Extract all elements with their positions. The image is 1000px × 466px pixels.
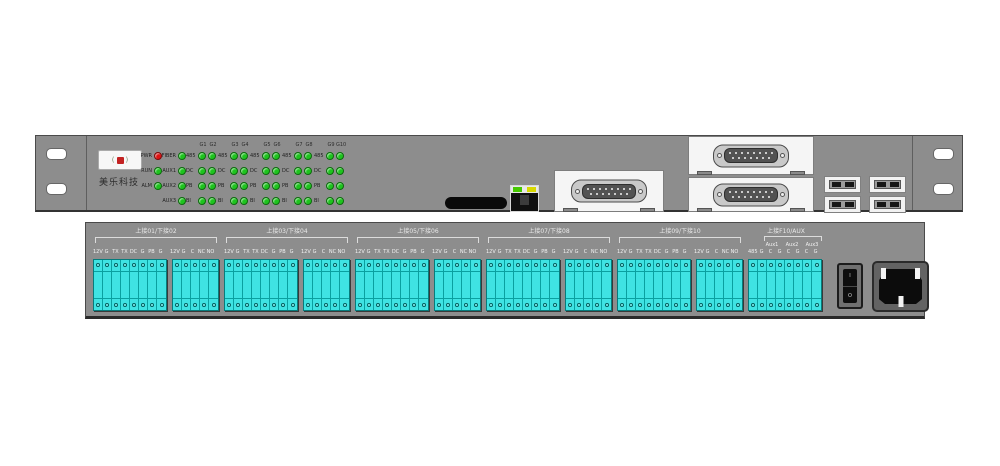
channel-led [230, 197, 238, 205]
terminal-label: TX [111, 249, 120, 256]
terminal [471, 260, 480, 310]
module-led-label: FIBER [160, 153, 176, 159]
db15-pin [735, 152, 737, 154]
db15-pin [738, 196, 740, 198]
db15-pin [617, 188, 619, 190]
terminal [505, 260, 514, 310]
db15-pin [765, 191, 767, 193]
rocker-divider [843, 286, 857, 287]
ethernet-activity-led [527, 187, 536, 192]
module-led-label: AUX2 [160, 183, 176, 189]
terminal [566, 260, 575, 310]
fiber-slot-icon [890, 182, 899, 187]
channel-led-pair: DC [218, 167, 250, 175]
back-panel: 上接01/下接0212VGTXTXDCGPBG12VGCNCNO上接03/下接0… [85, 222, 925, 319]
terminal [304, 260, 313, 310]
channel-led [208, 197, 216, 205]
channel-led [262, 197, 270, 205]
db15-pin [744, 157, 746, 159]
terminal-block [696, 259, 743, 311]
channel-led [326, 182, 334, 190]
terminal-block [303, 259, 350, 311]
terminal-block [93, 259, 167, 311]
terminal [103, 260, 112, 310]
terminal [322, 260, 331, 310]
power-switch: I O [837, 263, 863, 309]
channel-led [230, 182, 238, 190]
terminal [112, 260, 121, 310]
db15-module-1 [554, 170, 664, 212]
terminal-label: DC [653, 249, 662, 256]
grid-row-label: PB [282, 183, 294, 189]
channel-led-pair: BI [314, 197, 346, 205]
terminal-label: C [319, 249, 328, 256]
plate-tab [697, 208, 712, 212]
terminal-label: C [450, 249, 459, 256]
channel-led [240, 197, 248, 205]
channel-led-pair: PB [250, 182, 282, 190]
terminal-label: G [233, 249, 242, 256]
db15-pin [771, 191, 773, 193]
power-pin-icon [898, 296, 903, 307]
terminal [340, 260, 349, 310]
db15-pin [750, 196, 752, 198]
channel-led-pair: DC [186, 167, 218, 175]
channel-led [304, 197, 312, 205]
group-title: 上接05/下接06 [355, 227, 481, 236]
rack-mount-hole [933, 183, 954, 195]
aux-title: 上接F10/AUX [748, 227, 824, 236]
terminal [523, 260, 532, 310]
db15-pin [753, 152, 755, 154]
channel-terminal-group: 上接01/下接0212VGTXTXDCGPBG12VGCNCNO [93, 227, 219, 311]
channel-led-pair: DC [314, 167, 346, 175]
terminal-label: G [138, 249, 147, 256]
channel-led [326, 167, 334, 175]
channel-led-pair: 485 [282, 152, 314, 160]
terminal-label: G [310, 249, 319, 256]
terminal-label: DC [260, 249, 269, 256]
grid-row-label: BI [314, 198, 326, 204]
rack-mount-hole [46, 148, 67, 160]
module-led-row: AUX3 [160, 193, 186, 208]
db15-pin [750, 157, 752, 159]
terminal-label: 12V [432, 249, 441, 256]
terminal [767, 260, 776, 310]
screw-icon [638, 189, 643, 194]
channel-led [262, 167, 270, 175]
terminal [593, 260, 602, 310]
terminal-label: G [102, 249, 111, 256]
grid-row-label: DC [282, 168, 294, 174]
power-inlet [872, 261, 929, 312]
grid-row-label: DC [314, 168, 326, 174]
terminal [435, 260, 444, 310]
terminal-label: 12V [617, 249, 626, 256]
db15-pin [765, 152, 767, 154]
channel-header: G4 [240, 142, 250, 148]
terminal-label: TX [513, 249, 522, 256]
terminal [270, 260, 279, 310]
db15-connector [571, 180, 647, 203]
channel-led [198, 167, 206, 175]
channel-led-pair: BI [250, 197, 282, 205]
terminal [313, 260, 322, 310]
channel-led [198, 152, 206, 160]
channel-led [294, 152, 302, 160]
status-led-row: RUN [136, 163, 162, 178]
terminal [139, 260, 148, 310]
grid-row-label: BI [218, 198, 230, 204]
terminal-label: G [441, 249, 450, 256]
db15-pin [747, 152, 749, 154]
db15-pin [753, 191, 755, 193]
db15-pin-field [724, 148, 778, 163]
channel-header: G5 [262, 142, 272, 148]
terminal [532, 260, 541, 310]
terminal-label: C [766, 249, 775, 256]
terminal-label: TX [382, 249, 391, 256]
channel-led [304, 152, 312, 160]
terminal-label: PB [278, 249, 287, 256]
channel-led [240, 182, 248, 190]
group-bracket [357, 237, 479, 243]
terminal [724, 260, 733, 310]
terminal [234, 260, 243, 310]
group-title: 上接01/下接02 [93, 227, 219, 236]
db15-pin [735, 191, 737, 193]
db15-pin [593, 188, 595, 190]
group-bracket [226, 237, 348, 243]
terminal-label: G [757, 249, 766, 256]
grid-header-row: G1G2G3G4G5G6G7G8G9G10 [186, 138, 346, 148]
terminal [182, 260, 191, 310]
channel-led [336, 167, 344, 175]
terminal-label: DC [129, 249, 138, 256]
grid-row-label: 485 [282, 153, 294, 159]
terminal-label: G [418, 249, 427, 256]
aux-bracket [764, 236, 822, 241]
db15-module-3 [688, 177, 814, 212]
grid-row-label: PB [314, 183, 326, 189]
terminal [584, 260, 593, 310]
terminal-label: NO [337, 249, 346, 256]
terminal [173, 260, 182, 310]
grid-row-label: 485 [314, 153, 326, 159]
aux-terminal-group: 上接F10/AUXAux1Aux2Aux3485GCGCGCG [748, 227, 824, 311]
channel-led [240, 152, 248, 160]
ethernet-link-led [513, 187, 522, 192]
rack-mount-hole [46, 183, 67, 195]
terminal [383, 260, 392, 310]
terminal-label: 12V [93, 249, 102, 256]
terminal-label: 12V [563, 249, 572, 256]
db15-pin [602, 193, 604, 195]
aux3-led [178, 197, 186, 205]
terminal-blocks-row [93, 259, 219, 311]
terminal [225, 260, 234, 310]
terminal [356, 260, 365, 310]
grid-row-label: 485 [250, 153, 262, 159]
db15-pin [587, 188, 589, 190]
channel-led [198, 197, 206, 205]
channel-header: G9 [326, 142, 336, 148]
terminal-block [748, 259, 822, 311]
db15-pin [611, 188, 613, 190]
terminal-block [224, 259, 298, 311]
db15-pin-field [582, 184, 636, 199]
channel-led-grid: G1G2G3G4G5G6G7G8G9G10485485485485485DCDC… [186, 138, 346, 208]
channel-header: G3 [230, 142, 240, 148]
fiber-led [178, 152, 186, 160]
terminal-label: G [531, 249, 540, 256]
channel-header: G2 [208, 142, 218, 148]
module-led-column: FIBERAUX1AUX2AUX3 [160, 148, 186, 208]
terminal [191, 260, 200, 310]
back-groups-row: 上接01/下接0212VGTXTXDCGPBG12VGCNCNO上接03/下接0… [86, 223, 924, 316]
channel-led [262, 182, 270, 190]
terminal-label: DC [522, 249, 531, 256]
db15-pin [732, 157, 734, 159]
terminal-label: G [156, 249, 165, 256]
terminal [121, 260, 130, 310]
channel-header: G1 [198, 142, 208, 148]
aux-sub-label: Aux2 [782, 242, 802, 248]
terminal-blocks-row [617, 259, 743, 311]
terminal [200, 260, 209, 310]
channel-led [336, 152, 344, 160]
channel-led-pair: 485 [314, 152, 346, 160]
terminal-label: 12V [170, 249, 179, 256]
fiber-coupler [869, 196, 906, 213]
terminal-label: G [775, 249, 784, 256]
channel-led [294, 197, 302, 205]
terminal [715, 260, 724, 310]
grid-row-label: PB [250, 183, 262, 189]
terminal [453, 260, 462, 310]
terminal-label: TX [644, 249, 653, 256]
terminal-block [486, 259, 560, 311]
grid-row-label: BI [250, 198, 262, 204]
channel-led-pair: PB [186, 182, 218, 190]
terminal-label: NC [459, 249, 468, 256]
channel-led [336, 182, 344, 190]
db15-pin [759, 191, 761, 193]
aux1-led [178, 167, 186, 175]
terminal [392, 260, 401, 310]
screw-icon [780, 192, 785, 197]
db15-pin [732, 196, 734, 198]
db15-pin [738, 157, 740, 159]
terminal [803, 260, 812, 310]
terminal-label: TX [120, 249, 129, 256]
terminal [410, 260, 419, 310]
db15-pin [596, 193, 598, 195]
terminal [794, 260, 803, 310]
channel-header: G7 [294, 142, 304, 148]
fiber-slot-icon [845, 182, 854, 187]
terminal [627, 260, 636, 310]
module-led-row: AUX1 [160, 163, 186, 178]
db15-pin [729, 152, 731, 154]
status-led-column: PWRRUNALM [136, 148, 162, 193]
terminal [148, 260, 157, 310]
terminal-blocks-row [486, 259, 612, 311]
screw-icon [575, 189, 580, 194]
db15-pin [762, 157, 764, 159]
channel-terminal-group: 上接09/下接1012VGTXTXDCGPBG12VGCNCNO [617, 227, 743, 311]
grid-row: DCDCDCDCDC [186, 163, 346, 178]
channel-led-pair: BI [186, 197, 218, 205]
grid-row: PBPBPBPBPB [186, 178, 346, 193]
terminal [130, 260, 139, 310]
terminal-label: G [549, 249, 558, 256]
plate-tab [697, 171, 712, 175]
db15-pin [626, 193, 628, 195]
db15-pin [768, 157, 770, 159]
module-led-row: FIBER [160, 148, 186, 163]
terminal-label: G [703, 249, 712, 256]
channel-led [304, 182, 312, 190]
db15-pin [744, 196, 746, 198]
card-slot [445, 197, 507, 209]
terminal [645, 260, 654, 310]
terminal [401, 260, 410, 310]
screw-icon [717, 192, 722, 197]
db15-pin [629, 188, 631, 190]
grid-row-label: BI [282, 198, 294, 204]
power-pin-icon [915, 268, 920, 279]
fiber-coupler [824, 196, 861, 213]
terminal-label: G [811, 249, 820, 256]
ethernet-port [510, 185, 539, 212]
terminal-label: NC [721, 249, 730, 256]
grid-row-label: BI [186, 198, 198, 204]
switch-off-mark: O [843, 294, 857, 299]
terminal-label: G [793, 249, 802, 256]
module-led-row: AUX2 [160, 178, 186, 193]
db15-module-2 [688, 136, 814, 175]
channel-header: G6 [272, 142, 282, 148]
terminal [444, 260, 453, 310]
terminal [636, 260, 645, 310]
terminal-label: G [364, 249, 373, 256]
terminal-label: C [712, 249, 721, 256]
terminal-label: PB [540, 249, 549, 256]
db15-pin [741, 191, 743, 193]
db15-pin [620, 193, 622, 195]
terminal-label: G [572, 249, 581, 256]
terminal [541, 260, 550, 310]
terminal-label: NO [468, 249, 477, 256]
left-ear-divider [86, 136, 87, 210]
terminal-label: PB [671, 249, 680, 256]
channel-led-pair: DC [250, 167, 282, 175]
channel-led [336, 197, 344, 205]
aux2-led [178, 182, 186, 190]
group-title: 上接03/下接04 [224, 227, 350, 236]
grid-row: BIBIBIBIBI [186, 193, 346, 208]
terminal-labels: 485GCGCGCG [748, 249, 824, 256]
terminal-block [172, 259, 219, 311]
terminal-label: G [269, 249, 278, 256]
aux-sub-label: Aux3 [802, 242, 822, 248]
fiber-slot-icon [832, 202, 841, 207]
terminal [812, 260, 821, 310]
channel-led-pair: PB [314, 182, 346, 190]
status-led-label: ALM [136, 183, 152, 189]
terminal [758, 260, 767, 310]
channel-led-pair: PB [282, 182, 314, 190]
terminal [733, 260, 742, 310]
terminal-label: PB [147, 249, 156, 256]
fiber-slot-icon [832, 182, 841, 187]
screw-icon [717, 153, 722, 158]
terminal-label: TX [373, 249, 382, 256]
channel-header: G8 [304, 142, 314, 148]
laurel-right-icon: ) [126, 157, 129, 164]
channel-led [208, 152, 216, 160]
grid-row-label: PB [218, 183, 230, 189]
terminal-label: C [784, 249, 793, 256]
db15-pin [623, 188, 625, 190]
device-drawing: ( ) 美乐科技 PWRRUNALM FIBERAUX1AUX2AUX3 G1G… [0, 0, 1000, 466]
channel-led [326, 152, 334, 160]
grid-row: 485485485485485 [186, 148, 346, 163]
terminal [681, 260, 690, 310]
terminal-label: NO [730, 249, 739, 256]
channel-led [262, 152, 270, 160]
right-ear-divider [912, 136, 913, 210]
terminal-label: TX [504, 249, 513, 256]
module-led-label: AUX3 [160, 198, 176, 204]
db15-connector [713, 183, 789, 206]
terminal-label: NC [197, 249, 206, 256]
grid-row-label: 485 [218, 153, 230, 159]
channel-led [240, 167, 248, 175]
screw-icon [780, 153, 785, 158]
plate-tab [790, 171, 805, 175]
terminal-label: NO [206, 249, 215, 256]
status-led-row: ALM [136, 178, 162, 193]
terminal-label: PB [409, 249, 418, 256]
terminal-blocks-row [224, 259, 350, 311]
grid-row-label: DC [250, 168, 262, 174]
fiber-coupler [824, 176, 861, 193]
channel-led [198, 182, 206, 190]
terminal [209, 260, 218, 310]
db15-pin [599, 188, 601, 190]
terminal-label: G [495, 249, 504, 256]
terminal [672, 260, 681, 310]
terminal-label: 12V [301, 249, 310, 256]
terminal-label: NO [599, 249, 608, 256]
grid-row-label: PB [186, 183, 198, 189]
channel-terminal-group: 上接03/下接0412VGTXTXDCGPBG12VGCNCNO [224, 227, 350, 311]
channel-led [208, 182, 216, 190]
channel-terminal-group: 上接07/下接0812VGTXTXDCGPBG12VGCNCNO [486, 227, 612, 311]
db15-pin-field [724, 187, 778, 202]
terminal-label: 485 [748, 249, 757, 256]
grid-row-label: 485 [186, 153, 198, 159]
db15-pin [614, 193, 616, 195]
db15-connector [713, 144, 789, 167]
module-led-label: AUX1 [160, 168, 176, 174]
db15-pin [729, 191, 731, 193]
switch-on-mark: I [843, 274, 857, 279]
terminal-label: G [680, 249, 689, 256]
plate-tab [640, 208, 655, 212]
